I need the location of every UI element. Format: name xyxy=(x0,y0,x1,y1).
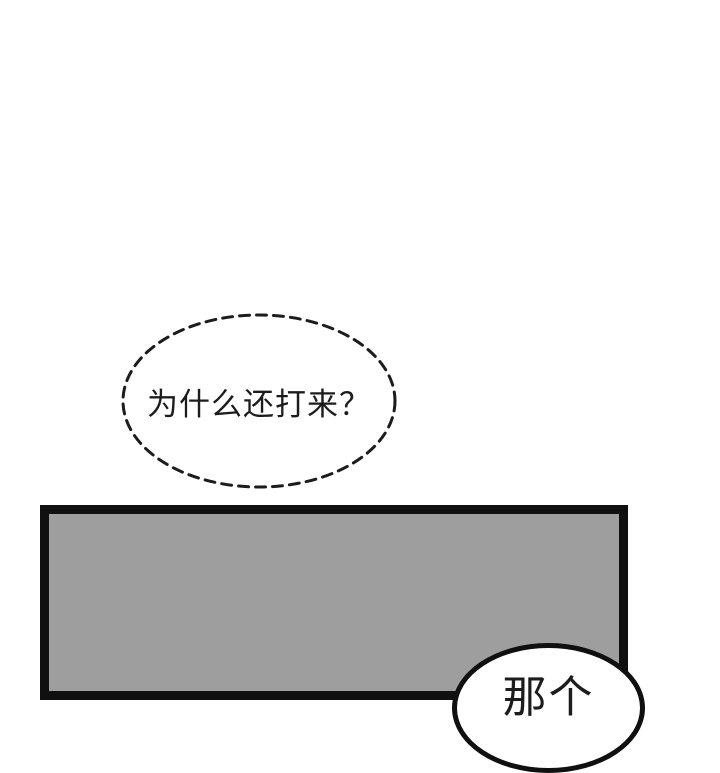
comic-page: 为什么还打来？ 那个 xyxy=(0,0,720,700)
dashed-bubble-text: 为什么还打来？ xyxy=(123,315,395,487)
bottom-bubble-text: 那个 xyxy=(452,672,645,725)
